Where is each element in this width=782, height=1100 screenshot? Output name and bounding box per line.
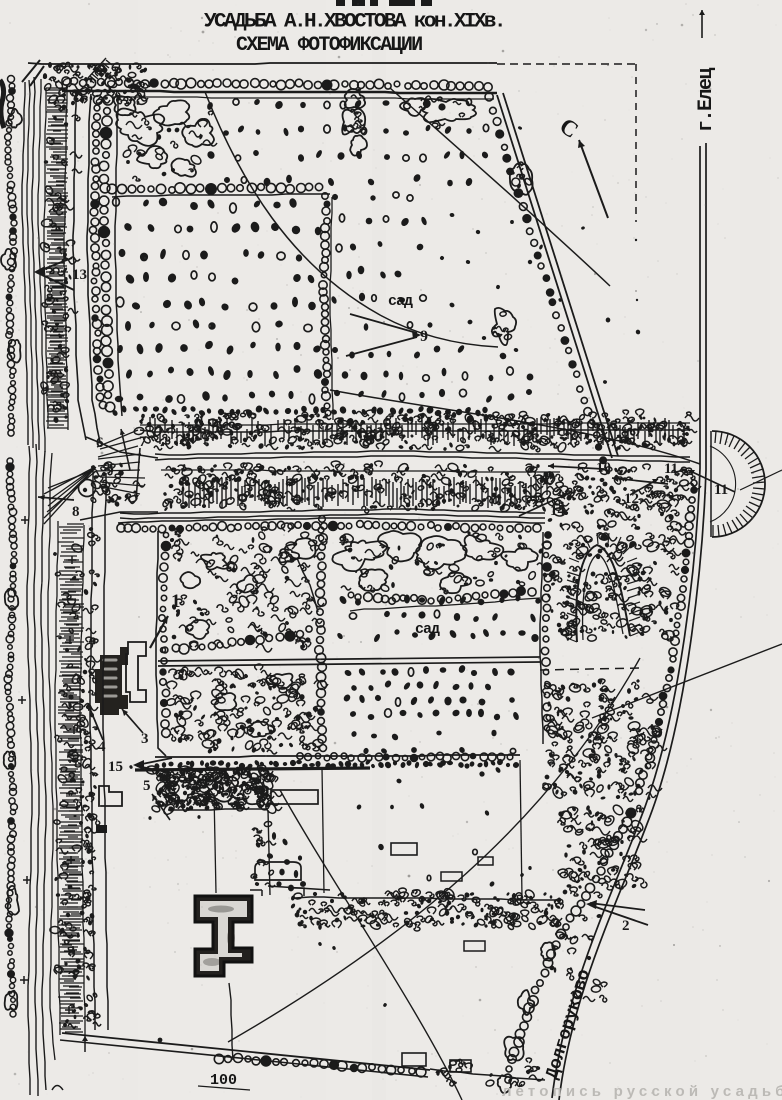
svg-text:сад: сад	[415, 621, 440, 638]
svg-text:8: 8	[72, 504, 80, 520]
svg-text:7: 7	[139, 434, 147, 450]
svg-text:11: 11	[664, 461, 678, 477]
svg-text:1: 1	[171, 591, 181, 612]
svg-text:г.Елец: г.Елец	[695, 67, 718, 132]
svg-text:летопись русской усадьбы: летопись русской усадьбы	[502, 1083, 782, 1100]
svg-text:УСАДЬБА А.Н.ХВОСТОВА кон.XIXв.: УСАДЬБА А.Н.ХВОСТОВА кон.XIXв.	[204, 11, 504, 34]
svg-text:13: 13	[72, 267, 87, 283]
svg-text:6: 6	[96, 435, 104, 451]
svg-text:11: 11	[714, 482, 728, 498]
svg-text:СХЕМА ФОТОФИКСАЦИИ: СХЕМА ФОТОФИКСАЦИИ	[236, 34, 422, 57]
svg-text:15: 15	[108, 759, 123, 775]
svg-text:5: 5	[143, 778, 151, 794]
svg-text:9: 9	[420, 328, 428, 345]
svg-text:сад: сад	[388, 293, 413, 310]
svg-text:100: 100	[210, 1072, 237, 1089]
svg-text:2: 2	[622, 918, 630, 934]
svg-text:4: 4	[98, 739, 106, 755]
svg-text:3: 3	[141, 731, 149, 747]
